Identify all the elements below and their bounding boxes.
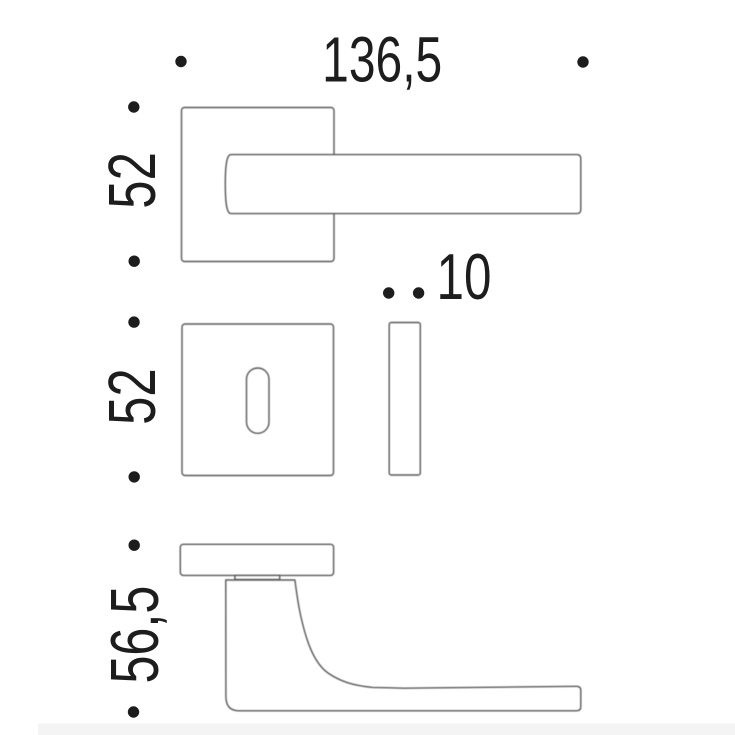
svg-text:52: 52 [94,152,169,209]
svg-text:136,5: 136,5 [322,24,442,95]
svg-text:52: 52 [94,368,169,425]
svg-text:10: 10 [437,242,492,314]
svg-text:56,5: 56,5 [96,586,172,684]
